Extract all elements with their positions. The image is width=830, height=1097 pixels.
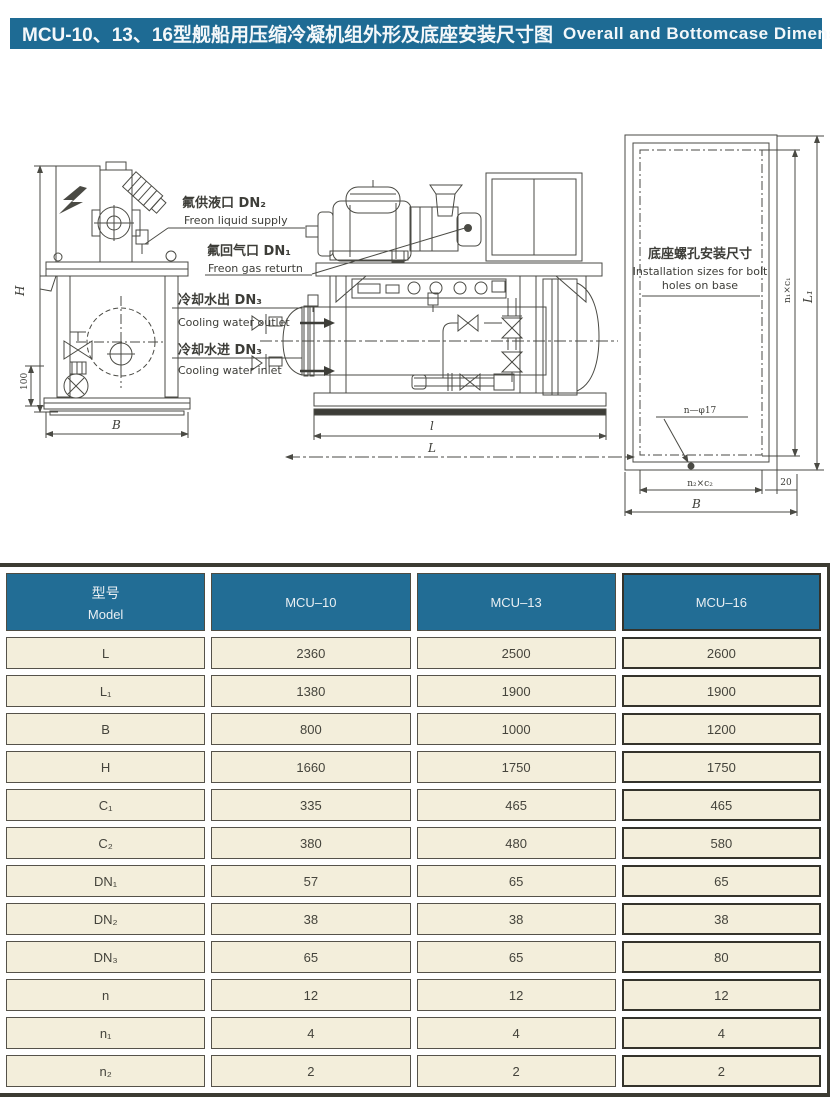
water-outlet-label-zh: 冷却水出 DN₃: [178, 292, 262, 308]
freon-liquid-label-zh: 氟供液口 DN₂: [182, 195, 266, 211]
value-cell: 1900: [622, 675, 821, 707]
value-cell: 465: [622, 789, 821, 821]
base-dim-L1: L₁: [801, 290, 815, 304]
value-cell: 65: [417, 865, 616, 897]
value-cell: 57: [211, 865, 410, 897]
value-cell: 335: [211, 789, 410, 821]
value-cell: 1660: [211, 751, 410, 783]
table-row: L₁138019001900: [6, 675, 821, 707]
value-cell: 380: [211, 827, 410, 859]
value-cell: 1750: [417, 751, 616, 783]
value-cell: 2: [622, 1055, 821, 1087]
value-cell: 2: [417, 1055, 616, 1087]
value-cell: 80: [622, 941, 821, 973]
value-cell: 12: [211, 979, 410, 1011]
lightning-icon: [59, 186, 87, 214]
value-cell: 2360: [211, 637, 410, 669]
base-plate-title-zh: 底座螺孔安装尺寸: [648, 246, 752, 262]
table-row: C₂380480580: [6, 827, 821, 859]
value-cell: 65: [622, 865, 821, 897]
table-row: L236025002600: [6, 637, 821, 669]
dimension-diagram: H 100 B: [0, 60, 830, 555]
base-dim-n2c2: n₂×c₂: [687, 479, 713, 489]
base-plate-title-en2: holes on base: [662, 279, 738, 292]
header-model-en: Model: [8, 607, 203, 622]
base-plate-drawing: [625, 135, 824, 516]
value-cell: 65: [211, 941, 410, 973]
param-cell: B: [6, 713, 205, 745]
value-cell: 1380: [211, 675, 410, 707]
front-dim-H: H: [13, 285, 27, 297]
table-row: n₁444: [6, 1017, 821, 1049]
side-dim-inner: l: [430, 419, 434, 433]
header-model-zh: 型号: [8, 583, 203, 603]
water-inlet-label-en: Cooling water inlet: [178, 364, 282, 377]
param-cell: H: [6, 751, 205, 783]
param-cell: n: [6, 979, 205, 1011]
value-cell: 1000: [417, 713, 616, 745]
water-outlet-label-en: Cooling water outlet: [178, 316, 290, 329]
value-cell: 580: [622, 827, 821, 859]
value-cell: 2600: [622, 637, 821, 669]
table-row: DN₁576565: [6, 865, 821, 897]
table-header-row: 型号 Model MCU–10 MCU–13 MCU–16: [6, 573, 821, 631]
header-model: 型号 Model: [6, 573, 205, 631]
table-row: B80010001200: [6, 713, 821, 745]
base-plate-holes-label: n—φ17: [684, 406, 717, 416]
base-plate-title-en1: Installation sizes for bolt: [633, 265, 768, 278]
param-cell: L₁: [6, 675, 205, 707]
freon-liquid-label-en: Freon liquid supply: [184, 214, 288, 227]
value-cell: 38: [211, 903, 410, 935]
value-cell: 1200: [622, 713, 821, 745]
header-mcu10: MCU–10: [211, 573, 410, 631]
freon-gas-label-en: Freon gas returtn: [208, 262, 303, 275]
side-dim-outer: L: [427, 441, 436, 455]
value-cell: 12: [417, 979, 616, 1011]
callout-freon-liquid: 氟供液口 DN₂ Freon liquid supply: [145, 195, 305, 244]
param-cell: n₂: [6, 1055, 205, 1087]
table-row: H166017501750: [6, 751, 821, 783]
param-cell: DN₁: [6, 865, 205, 897]
value-cell: 480: [417, 827, 616, 859]
value-cell: 800: [211, 713, 410, 745]
water-inlet-label-zh: 冷却水进 DN₃: [178, 342, 262, 358]
param-cell: C₂: [6, 827, 205, 859]
value-cell: 2: [211, 1055, 410, 1087]
front-view-drawing: [25, 162, 190, 438]
dimension-table: 型号 Model MCU–10 MCU–13 MCU–16 L236025002…: [0, 563, 830, 1097]
table-row: DN₃656580: [6, 941, 821, 973]
value-cell: 465: [417, 789, 616, 821]
header-mcu16: MCU–16: [622, 573, 821, 631]
base-dim-20: 20: [780, 478, 792, 488]
header-mcu13: MCU–13: [417, 573, 616, 631]
param-cell: C₁: [6, 789, 205, 821]
value-cell: 1750: [622, 751, 821, 783]
side-view-drawing: [252, 173, 634, 457]
value-cell: 4: [417, 1017, 616, 1049]
page-title-bar: MCU-10、13、16型舰船用压缩冷凝机组外形及底座安装尺寸图 Overall…: [10, 18, 822, 49]
value-cell: 2500: [417, 637, 616, 669]
param-cell: DN₃: [6, 941, 205, 973]
value-cell: 12: [622, 979, 821, 1011]
table-row: n₂222: [6, 1055, 821, 1087]
page-title-zh: MCU-10、13、16型舰船用压缩冷凝机组外形及底座安装尺寸图: [22, 20, 553, 47]
value-cell: 65: [417, 941, 616, 973]
page-title-en: Overall and Bottomcase Dimension Diagram: [563, 24, 830, 44]
value-cell: 38: [622, 903, 821, 935]
value-cell: 4: [622, 1017, 821, 1049]
base-dim-B: B: [691, 497, 701, 511]
param-cell: n₁: [6, 1017, 205, 1049]
table-row: n121212: [6, 979, 821, 1011]
table-row: C₁335465465: [6, 789, 821, 821]
table-row: DN₂383838: [6, 903, 821, 935]
callout-water-outlet: 冷却水出 DN₃ Cooling water outlet: [172, 292, 335, 329]
param-cell: L: [6, 637, 205, 669]
front-dim-100: 100: [20, 373, 30, 390]
param-cell: DN₂: [6, 903, 205, 935]
front-dim-B: B: [111, 418, 121, 432]
freon-gas-label-zh: 氟回气口 DN₁: [207, 243, 291, 259]
value-cell: 4: [211, 1017, 410, 1049]
value-cell: 38: [417, 903, 616, 935]
value-cell: 1900: [417, 675, 616, 707]
callout-water-inlet: 冷却水进 DN₃ Cooling water inlet: [172, 342, 335, 377]
base-dim-n1c1: n₁×c₁: [783, 277, 793, 303]
